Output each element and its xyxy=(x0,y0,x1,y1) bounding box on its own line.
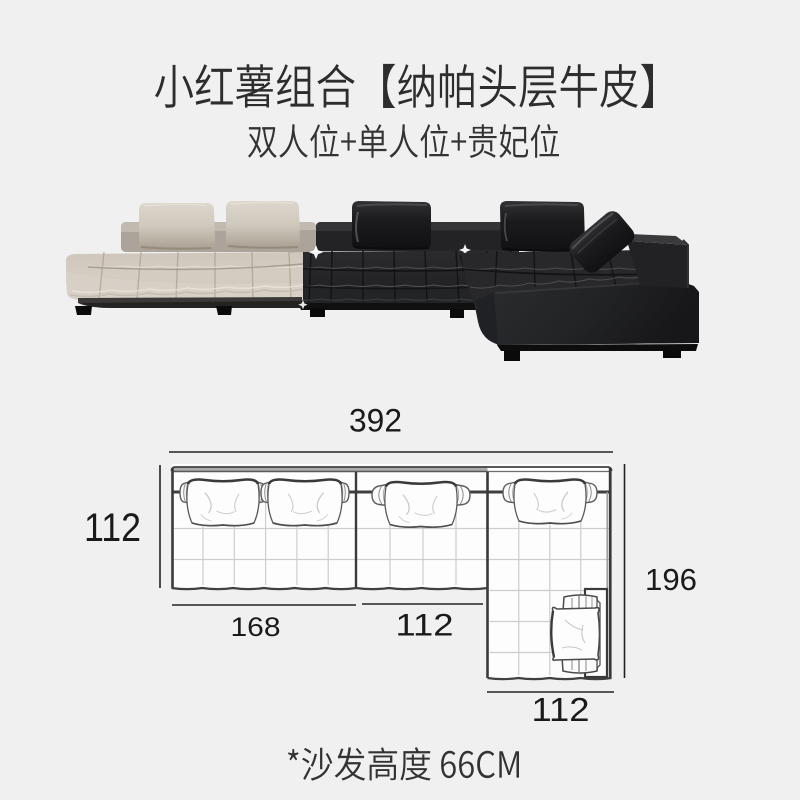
svg-text:112: 112 xyxy=(396,607,454,643)
svg-text:392: 392 xyxy=(349,403,402,439)
svg-text:112: 112 xyxy=(532,691,590,728)
svg-text:112: 112 xyxy=(84,506,141,550)
svg-text:168: 168 xyxy=(231,612,281,642)
svg-text:196: 196 xyxy=(645,562,697,597)
